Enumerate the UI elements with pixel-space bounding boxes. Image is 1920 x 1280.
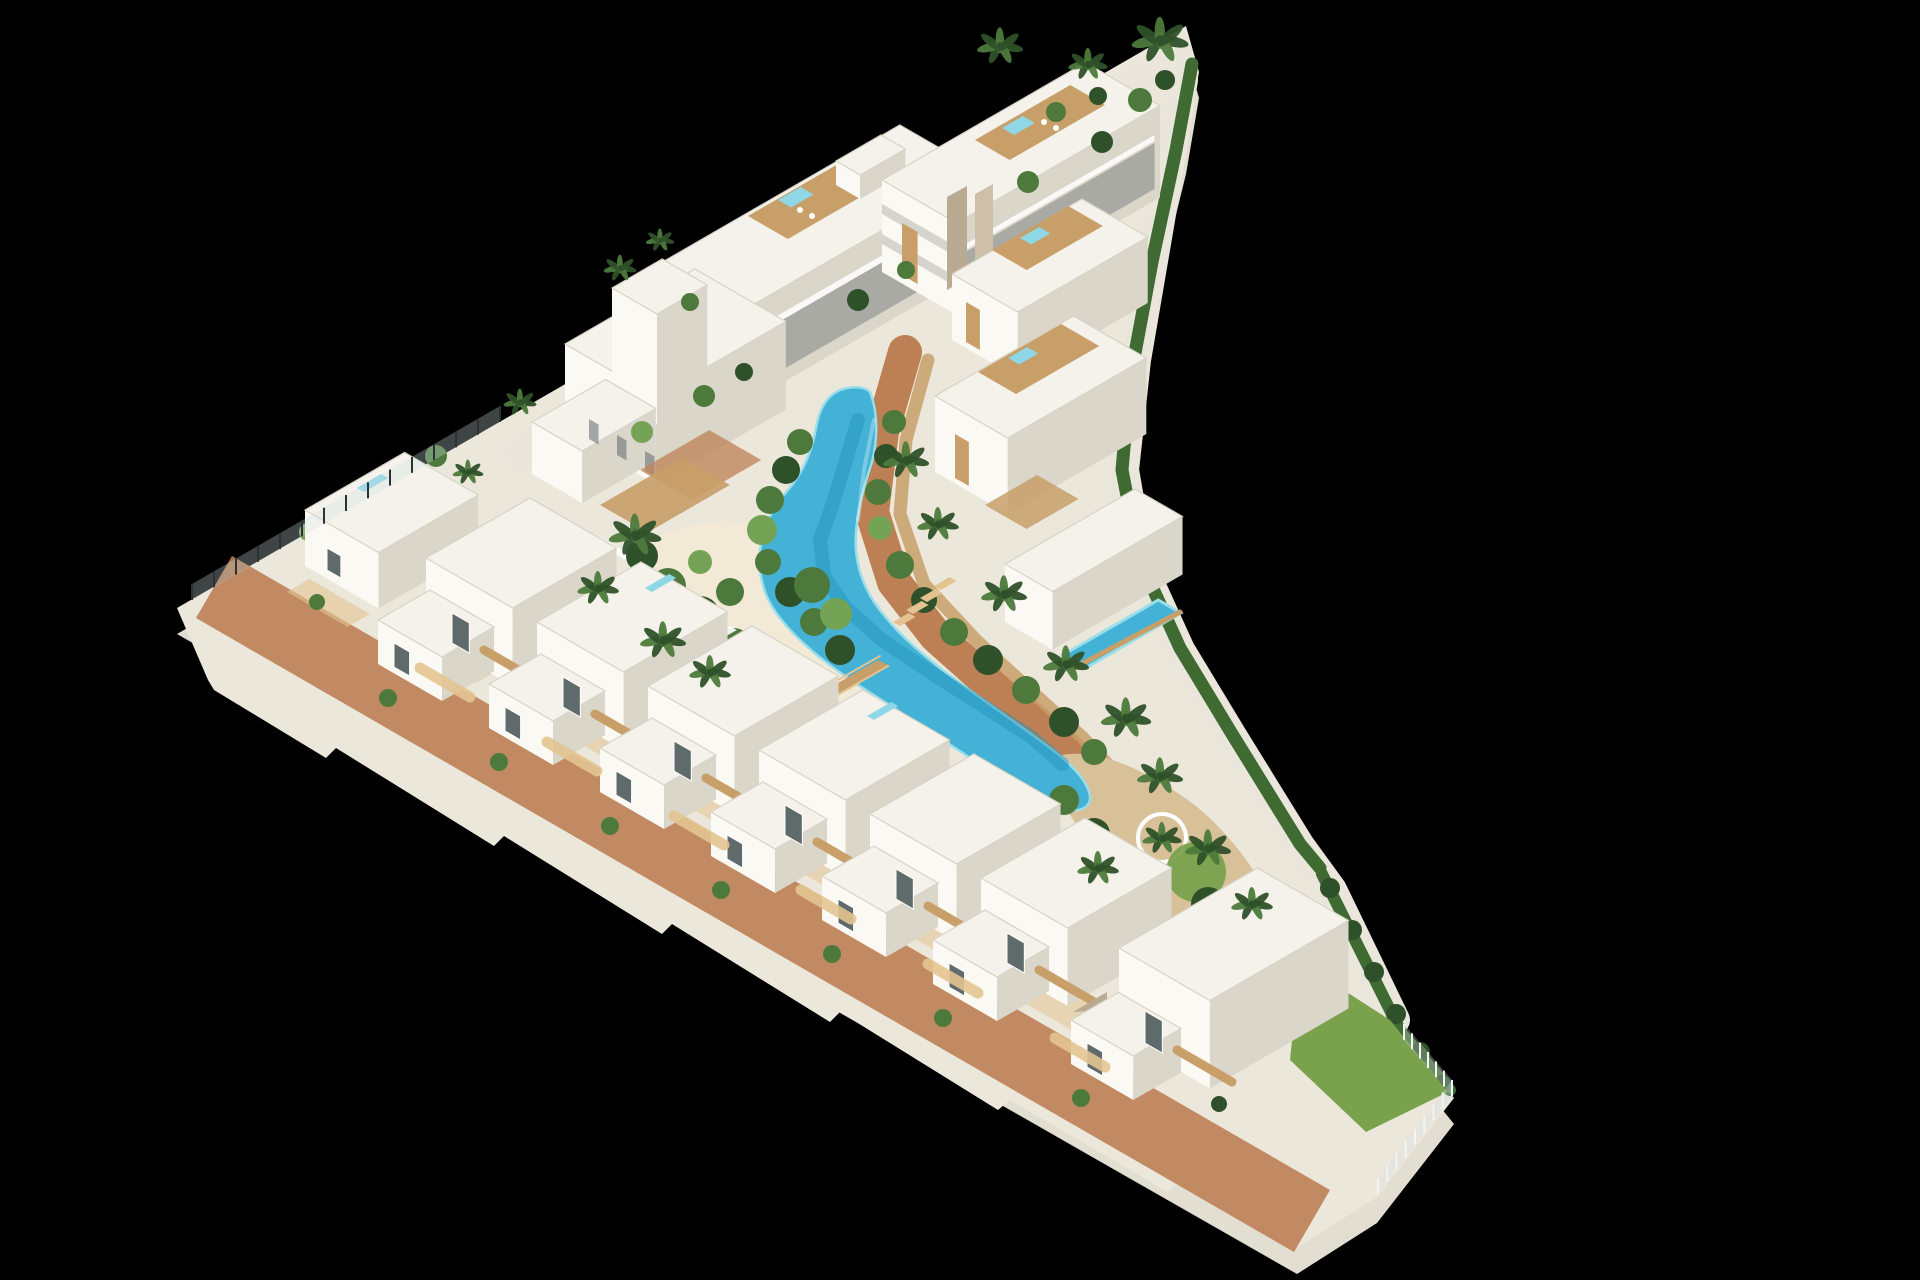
shrub <box>886 551 914 579</box>
palm-crown <box>631 531 640 540</box>
shrub <box>825 635 855 665</box>
palm-crown <box>707 669 714 676</box>
shrub <box>1049 707 1079 737</box>
shrub <box>735 363 753 381</box>
palm-crown <box>1249 901 1256 908</box>
shrub <box>973 645 1003 675</box>
roof-furniture <box>809 213 815 219</box>
roof-furniture <box>797 207 803 213</box>
planter <box>379 689 397 707</box>
wood-slat-panel <box>966 302 980 350</box>
palm-crown <box>1155 35 1164 44</box>
palm-crown <box>1085 61 1091 67</box>
roof-furniture <box>1053 125 1059 131</box>
shrub <box>847 289 869 311</box>
wood-slat-panel <box>955 434 969 486</box>
planter <box>1072 1089 1090 1107</box>
shrub <box>693 385 715 407</box>
shrub <box>716 578 744 606</box>
shrub <box>787 429 813 455</box>
shrub <box>1128 88 1152 112</box>
shrub <box>882 410 906 434</box>
palm-crown <box>465 469 470 474</box>
shrub <box>897 261 915 279</box>
planter <box>823 945 841 963</box>
planter <box>309 594 325 610</box>
planter <box>934 1009 952 1027</box>
roof-furniture <box>1041 119 1047 125</box>
palm-crown <box>1095 865 1102 872</box>
roof-planter <box>1046 102 1066 122</box>
shrub <box>820 598 852 630</box>
shrub <box>1017 171 1039 193</box>
planter <box>601 817 619 835</box>
shrub <box>681 293 699 311</box>
palm-crown <box>1156 772 1164 780</box>
shrub <box>1091 131 1113 153</box>
shrub <box>631 421 653 443</box>
palm-crown <box>1122 714 1130 722</box>
planter <box>1211 1096 1227 1112</box>
palm-crown <box>1000 590 1008 598</box>
shrub <box>1012 676 1040 704</box>
aerial-site-render <box>0 0 1920 1280</box>
shrub <box>1081 739 1107 765</box>
shrub <box>865 479 891 505</box>
planter <box>712 881 730 899</box>
shrub <box>1155 70 1175 90</box>
palm-crown <box>996 42 1004 50</box>
shrub <box>868 516 892 540</box>
palm-crown <box>659 636 667 644</box>
shrub <box>747 515 777 545</box>
palm-crown <box>617 265 622 270</box>
palm-crown <box>517 399 522 404</box>
palm-crown <box>1204 844 1212 852</box>
shrub <box>755 549 781 575</box>
roof-planter <box>1089 87 1107 105</box>
shrub <box>772 456 800 484</box>
planter <box>490 753 508 771</box>
shrub <box>940 618 968 646</box>
palm-crown <box>1159 835 1165 841</box>
palm-crown <box>902 456 910 464</box>
hedge-bush <box>1320 878 1340 898</box>
palm-crown <box>1062 660 1070 668</box>
palm-crown <box>595 585 602 592</box>
palm-crown <box>658 238 663 243</box>
palm-crown <box>935 521 942 528</box>
shrub <box>688 550 712 574</box>
hedge-bush <box>1364 962 1384 982</box>
shrub <box>756 486 784 514</box>
shrub <box>794 567 830 603</box>
